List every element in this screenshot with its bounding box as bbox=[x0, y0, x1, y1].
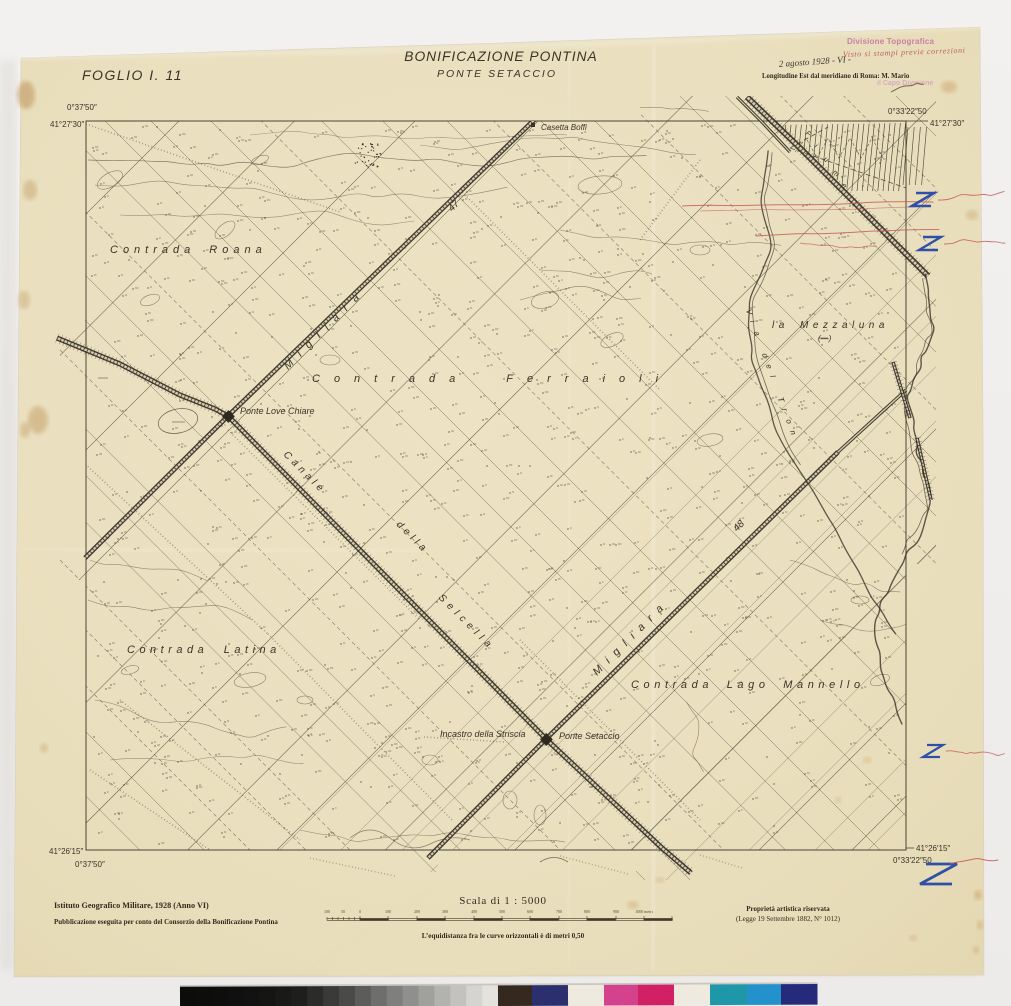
svg-text:200: 200 bbox=[414, 909, 420, 914]
svg-text:Istituto Geografico Militare,: Istituto Geografico Militare, 1928 (Anno… bbox=[54, 901, 209, 910]
svg-text:0: 0 bbox=[359, 909, 361, 914]
svg-text:600: 600 bbox=[527, 909, 533, 914]
svg-text:BONIFICAZIONE PONTINA: BONIFICAZIONE PONTINA bbox=[404, 49, 597, 64]
svg-text:Scala di 1 : 5000: Scala di 1 : 5000 bbox=[459, 895, 547, 907]
svg-text:Contrada Lago Mannello: Contrada Lago Mannello bbox=[631, 679, 865, 691]
svg-text:100: 100 bbox=[385, 909, 391, 914]
svg-text:41°27′30″: 41°27′30″ bbox=[930, 119, 964, 128]
svg-text:Contrada Latina: Contrada Latina bbox=[127, 644, 281, 656]
svg-text:Casetta Boffi: Casetta Boffi bbox=[541, 123, 587, 132]
svg-text:41°26′15″: 41°26′15″ bbox=[916, 844, 950, 853]
svg-text:Divisione Topografica: Divisione Topografica bbox=[847, 37, 935, 46]
svg-text:300: 300 bbox=[442, 909, 448, 914]
svg-text:Pubblicazione eseguita per con: Pubblicazione eseguita per conto del Con… bbox=[54, 918, 278, 926]
svg-text:900: 900 bbox=[613, 909, 619, 914]
svg-text:100: 100 bbox=[324, 909, 330, 914]
svg-text:41°26′15″: 41°26′15″ bbox=[49, 847, 83, 856]
svg-text:(—): (—) bbox=[818, 334, 832, 343]
svg-text:800: 800 bbox=[584, 909, 590, 914]
svg-text:(Legge 19 Settembre 1882, N° 1: (Legge 19 Settembre 1882, N° 1012) bbox=[736, 915, 841, 923]
svg-text:la Mezzaluna: la Mezzaluna bbox=[772, 320, 889, 331]
svg-text:50: 50 bbox=[341, 909, 345, 914]
svg-text:0°37′50″: 0°37′50″ bbox=[75, 860, 105, 869]
svg-text:41°27′30″: 41°27′30″ bbox=[50, 120, 84, 129]
svg-text:Ponte Setaccio: Ponte Setaccio bbox=[559, 731, 620, 741]
svg-text:400: 400 bbox=[471, 909, 477, 914]
svg-text:Incastro della Striscia: Incastro della Striscia bbox=[440, 729, 526, 739]
svg-text:0°33′22″50: 0°33′22″50 bbox=[888, 107, 927, 116]
svg-text:Longitudine Est dal meridiano: Longitudine Est dal meridiano di Roma: M… bbox=[762, 73, 910, 80]
svg-text:L’equidistanza fra le curve or: L’equidistanza fra le curve orizzontali … bbox=[422, 932, 585, 940]
svg-text:0°37′50″: 0°37′50″ bbox=[67, 103, 97, 112]
svg-text:Proprietà artistica riservata: Proprietà artistica riservata bbox=[746, 905, 830, 913]
svg-text:FOGLIO I. 11: FOGLIO I. 11 bbox=[82, 67, 183, 83]
svg-text:500: 500 bbox=[499, 909, 505, 914]
svg-text:1000 metri: 1000 metri bbox=[635, 909, 653, 914]
svg-text:PONTE SETACCIO: PONTE SETACCIO bbox=[437, 68, 557, 80]
svg-text:Contrada Roana: Contrada Roana bbox=[110, 244, 267, 256]
svg-text:700: 700 bbox=[556, 909, 562, 914]
svg-text:Contrada Ferraioli: Contrada Ferraioli bbox=[312, 373, 672, 385]
svg-text:Ponte Love Chiare: Ponte Love Chiare bbox=[240, 406, 315, 416]
